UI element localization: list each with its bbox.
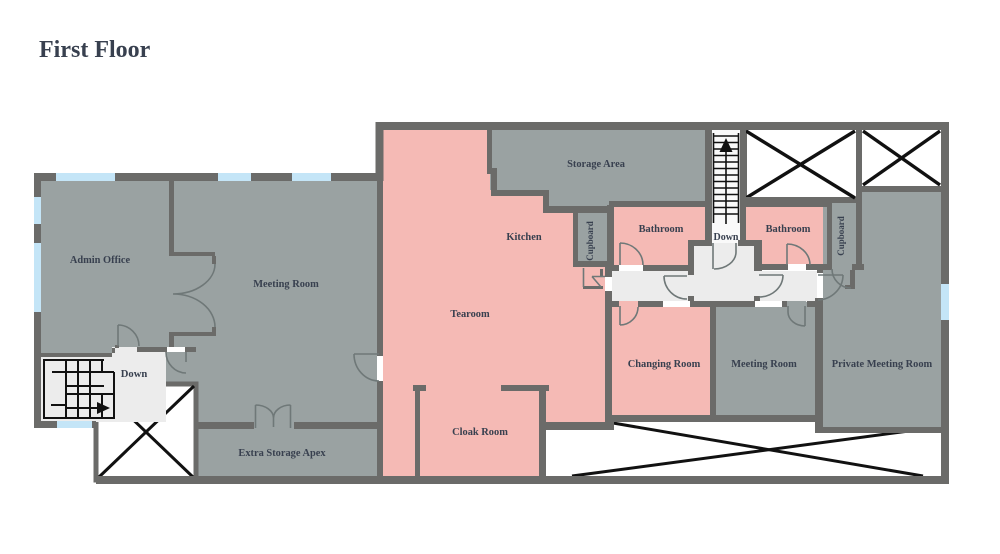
svg-text:Storage Area: Storage Area [567, 159, 626, 170]
svg-text:Extra Storage Apex: Extra Storage Apex [238, 448, 326, 459]
svg-text:Kitchen: Kitchen [506, 232, 541, 243]
svg-text:First Floor: First Floor [39, 37, 151, 63]
svg-text:Bathroom: Bathroom [639, 224, 684, 235]
svg-text:Meeting Room: Meeting Room [253, 279, 319, 290]
svg-text:Changing Room: Changing Room [628, 359, 701, 370]
svg-text:Cupboard: Cupboard [836, 216, 846, 256]
svg-text:Admin Office: Admin Office [70, 255, 131, 266]
svg-text:Cloak Room: Cloak Room [452, 427, 508, 438]
svg-text:Private Meeting Room: Private Meeting Room [832, 359, 933, 370]
svg-text:Tearoom: Tearoom [450, 309, 490, 320]
svg-text:Bathroom: Bathroom [766, 224, 811, 235]
svg-text:Down: Down [713, 232, 738, 243]
svg-text:Down: Down [121, 369, 148, 380]
svg-text:Cupboard: Cupboard [585, 221, 595, 261]
svg-text:Meeting Room: Meeting Room [731, 359, 797, 370]
